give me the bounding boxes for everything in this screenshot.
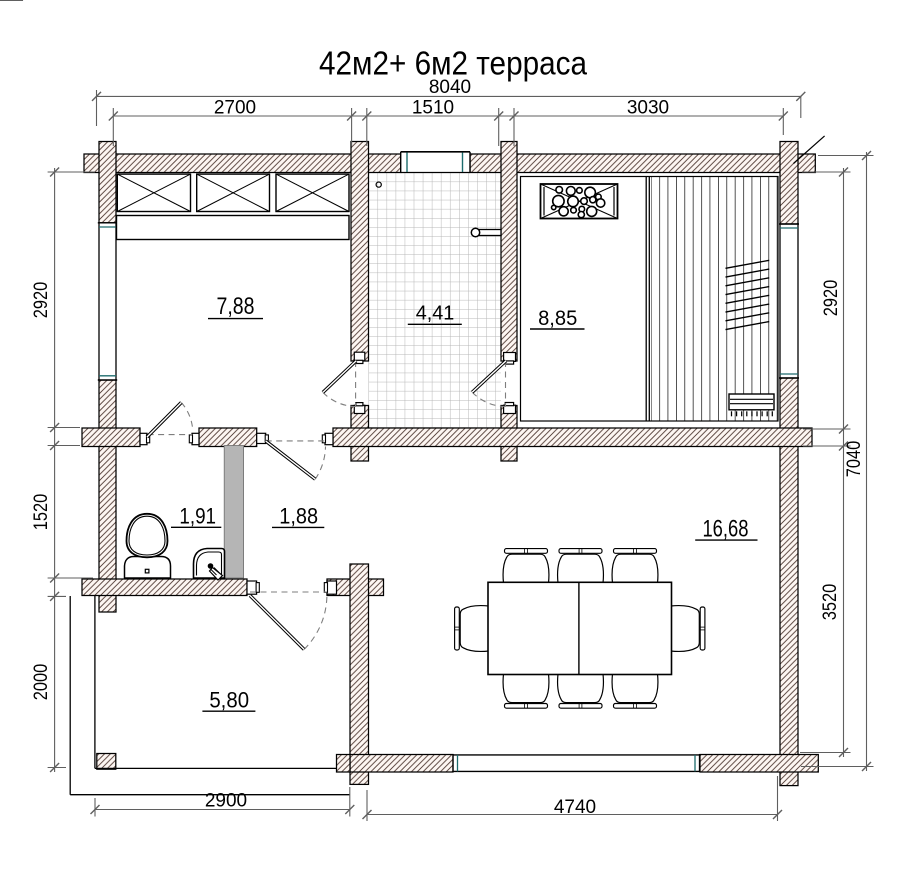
svg-text:7,88: 7,88 xyxy=(217,293,255,320)
svg-text:4,41: 4,41 xyxy=(416,302,455,325)
svg-text:16,68: 16,68 xyxy=(702,516,748,542)
svg-text:2700: 2700 xyxy=(214,98,256,119)
svg-text:1520: 1520 xyxy=(31,494,52,531)
svg-text:2920: 2920 xyxy=(31,282,52,319)
svg-text:1,88: 1,88 xyxy=(279,504,318,529)
svg-text:2920: 2920 xyxy=(821,280,842,317)
svg-text:3030: 3030 xyxy=(627,98,669,119)
svg-text:2000: 2000 xyxy=(31,664,52,701)
svg-text:7040: 7040 xyxy=(844,441,865,478)
svg-text:4740: 4740 xyxy=(554,797,596,818)
svg-text:1,91: 1,91 xyxy=(179,504,216,529)
svg-text:2900: 2900 xyxy=(205,791,247,812)
svg-text:42м2+ 6м2 терраса: 42м2+ 6м2 терраса xyxy=(319,45,588,82)
svg-text:8,85: 8,85 xyxy=(538,306,577,330)
svg-text:3520: 3520 xyxy=(820,584,841,621)
svg-text:5,80: 5,80 xyxy=(209,688,249,713)
svg-text:1510: 1510 xyxy=(412,98,454,119)
